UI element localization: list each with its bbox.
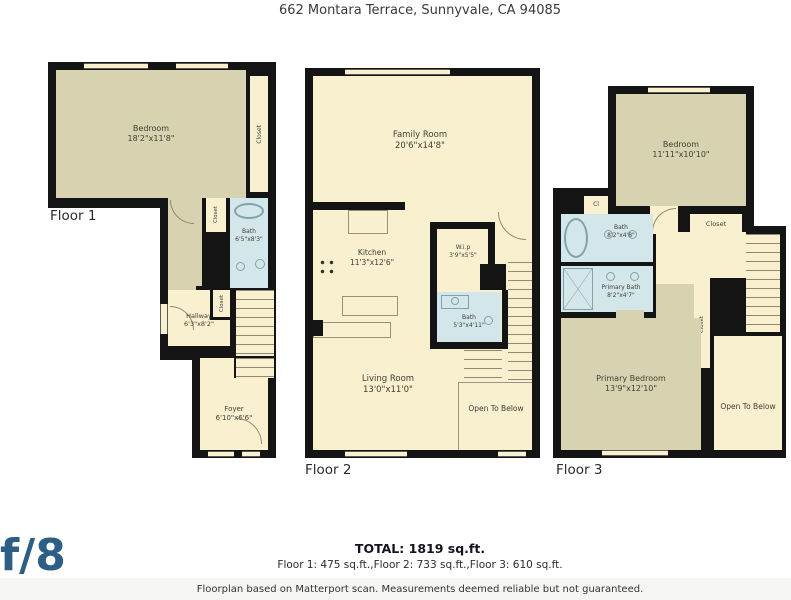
floor1-landing [200, 358, 234, 378]
floorplan-page: 662 Montara Terrace, Sunnyvale, CA 94085… [0, 0, 791, 600]
room-label: Bath [592, 224, 650, 232]
window [602, 450, 668, 456]
entry-door-gap [208, 451, 234, 457]
door-gap [160, 304, 168, 334]
window [498, 451, 526, 457]
floor1-closet-right: Closet [250, 76, 268, 192]
room-label: Bath [437, 314, 501, 322]
room-label: Bedroom [663, 140, 699, 150]
floor2-title: Floor 2 [305, 462, 351, 478]
room-dims: 6'3"x8'2" [168, 320, 230, 328]
room-dims: 3'9"x5'5" [436, 252, 490, 260]
room-dims: 5'3"x4'11" [437, 322, 501, 330]
room-label: Primary Bedroom [596, 374, 666, 384]
room-label: W.i.p [436, 244, 490, 252]
floor3-bedroom: Bedroom 11'11"x10'10" [616, 94, 746, 206]
room-dims: 8'2"x4'7" [592, 292, 650, 300]
floor3-title: Floor 3 [556, 462, 602, 478]
room-label: Open To Below [460, 404, 532, 414]
room-dims: 20'6"x14'8" [360, 141, 480, 152]
floor2-family-room-label: Family Room 20'6"x14'8" [360, 130, 480, 152]
room-label: Kitchen [322, 248, 422, 258]
floor1-closet-hall: Closet [210, 290, 230, 320]
floor1-stairs [236, 290, 274, 356]
floor3-open-to-below-label: Open To Below [710, 402, 786, 412]
room-dims: 11'3"x12'6" [322, 258, 422, 268]
toilet-icon [630, 272, 639, 281]
window [648, 87, 710, 93]
floor3-primary-bath-label: Primary Bath 8'2"x4'7" [592, 284, 650, 300]
floor2-open-to-below-label: Open To Below [460, 404, 532, 414]
room-label: Open To Below [710, 402, 786, 412]
open-to-below-boundary [458, 382, 532, 450]
floor3-primary-bedroom: Primary Bedroom 13'9"x12'10" [561, 318, 701, 450]
bathtub-icon [564, 218, 588, 258]
per-floor-sqft: Floor 1: 475 sq.ft.,Floor 2: 733 sq.ft.,… [49, 559, 791, 571]
floor3-stairs [746, 234, 780, 332]
closet-label: Closet [706, 220, 726, 228]
floor2-wip-label: W.i.p 3'9"x5'5" [436, 244, 490, 260]
shower-icon [563, 268, 593, 310]
pantry-wall-top [430, 222, 494, 229]
sink-icon [606, 272, 615, 281]
fridge-icon [348, 210, 388, 234]
floor2-wall-block [480, 264, 506, 290]
floor3-bath-label: Bath 8'2"x4'8" [592, 224, 650, 240]
floor1-bedroom: Bedroom 18'2"x11'8" [56, 70, 246, 198]
sink-icon [255, 259, 265, 269]
kitchen-island-icon [342, 296, 398, 316]
floor1-stairs-lower [236, 358, 274, 378]
room-label: Family Room [360, 130, 480, 141]
room-label: Bath [228, 228, 270, 236]
disclaimer-text: Floorplan based on Matterport scan. Meas… [49, 584, 791, 595]
floor1-bath-label: Bath 6'5"x8'3" [228, 228, 270, 244]
room-label: Bedroom [133, 124, 169, 134]
floor2-bath-label: Bath 5'3"x4'11" [437, 314, 501, 330]
closet-label: Cl [593, 201, 599, 209]
toilet-icon [236, 262, 245, 271]
sink-icon [451, 297, 459, 305]
closet-label: Closet [213, 206, 219, 223]
page-title: 662 Montara Terrace, Sunnyvale, CA 94085 [49, 3, 791, 18]
window [176, 63, 228, 69]
floor2-stairs-up [508, 262, 532, 386]
room-label: Foyer [224, 405, 243, 414]
floor2-living-room-label: Living Room 13'0"x11'0" [328, 374, 448, 396]
window [345, 69, 450, 75]
f8-logo: f/8 [0, 534, 66, 578]
floor1-title: Floor 1 [50, 208, 96, 224]
floor2-wall-notch [305, 320, 323, 336]
room-dims: 13'9"x12'10" [605, 384, 657, 394]
room-dims: 6'5"x8'3" [228, 236, 270, 244]
kitchen-divider-wall [313, 202, 405, 210]
closet-label: Closet [219, 295, 225, 312]
room-dims: 18'2"x11'8" [127, 134, 174, 144]
closet-label: Closet [256, 125, 263, 144]
window [84, 63, 148, 69]
floor3-black-block [710, 278, 746, 334]
window [345, 451, 407, 457]
room-label: Primary Bath [592, 284, 650, 292]
floor2-stairs-return [464, 350, 502, 386]
bathtub-icon [234, 203, 264, 219]
floor3-pbath-doorway [616, 310, 644, 320]
floor3-open-to-below [714, 336, 782, 450]
room-dims: 13'0"x11'0" [328, 385, 448, 396]
floor2-kitchen-label: Kitchen 11'3"x12'6" [322, 248, 422, 268]
total-sqft: TOTAL: 1819 sq.ft. [49, 541, 791, 556]
floor3-cl-closet: Cl [584, 196, 608, 214]
room-dims: 8'2"x4'8" [592, 232, 650, 240]
bath-wall-bottom [430, 342, 508, 349]
floor1-closet-mid: Closet [206, 198, 226, 232]
bath-wall-left [430, 288, 437, 349]
window [242, 451, 260, 457]
room-label: Living Room [328, 374, 448, 385]
counter-icon [313, 322, 391, 338]
floor3-closet-top: Closet [690, 214, 742, 234]
room-dims: 11'11"x10'10" [652, 150, 709, 160]
